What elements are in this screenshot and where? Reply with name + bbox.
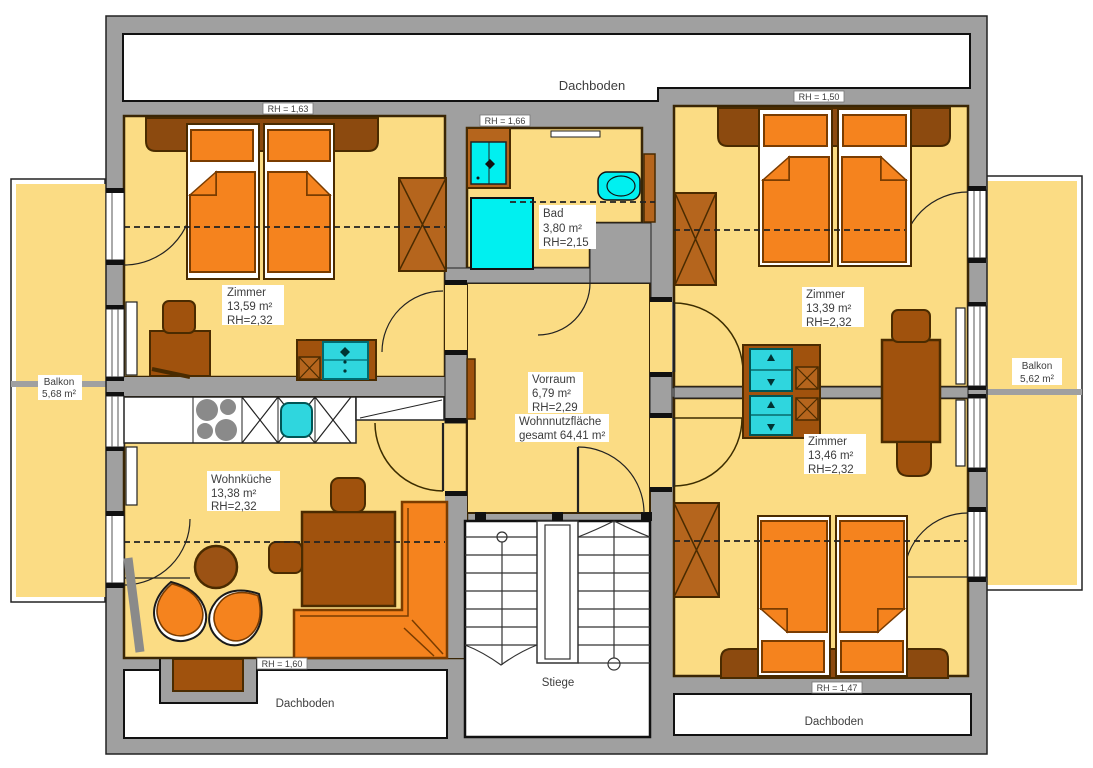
svg-text:RH=2,32: RH=2,32 (806, 317, 852, 329)
svg-text:RH=2,15: RH=2,15 (543, 237, 589, 249)
svg-text:Balkon: Balkon (44, 377, 75, 388)
svg-text:Dachboden: Dachboden (805, 716, 864, 728)
svg-text:Balkon: Balkon (1022, 361, 1053, 372)
svg-text:Zimmer: Zimmer (227, 287, 266, 299)
svg-text:RH = 1,63: RH = 1,63 (268, 104, 309, 114)
svg-text:Wohnküche: Wohnküche (211, 474, 272, 486)
svg-text:6,79 m²: 6,79 m² (532, 388, 571, 400)
svg-text:5,62 m²: 5,62 m² (1020, 374, 1055, 385)
svg-text:RH=2,32: RH=2,32 (227, 315, 273, 327)
svg-text:13,59 m²: 13,59 m² (227, 301, 273, 313)
svg-text:Zimmer: Zimmer (808, 436, 847, 448)
svg-text:RH=2,32: RH=2,32 (808, 464, 854, 476)
svg-text:RH=2,29: RH=2,29 (532, 402, 578, 414)
svg-text:3,80 m²: 3,80 m² (543, 223, 582, 235)
svg-text:Bad: Bad (543, 208, 563, 220)
svg-text:RH = 1,50: RH = 1,50 (799, 92, 840, 102)
svg-text:13,46 m²: 13,46 m² (808, 450, 854, 462)
svg-text:RH=2,32: RH=2,32 (211, 501, 257, 513)
svg-text:Wohnnutzfläche: Wohnnutzfläche (519, 416, 601, 428)
svg-text:Zimmer: Zimmer (806, 289, 845, 301)
svg-text:5,68 m²: 5,68 m² (42, 389, 77, 400)
svg-text:RH = 1,60: RH = 1,60 (262, 659, 303, 669)
svg-text:RH = 1,66: RH = 1,66 (485, 116, 526, 126)
svg-text:13,39 m²: 13,39 m² (806, 303, 852, 315)
svg-text:RH = 1,47: RH = 1,47 (817, 683, 858, 693)
svg-text:Dachboden: Dachboden (559, 78, 626, 93)
svg-text:Dachboden: Dachboden (276, 698, 335, 710)
svg-text:gesamt 64,41 m²: gesamt 64,41 m² (519, 430, 605, 442)
svg-text:Stiege: Stiege (542, 677, 575, 689)
svg-text:13,38 m²: 13,38 m² (211, 488, 257, 500)
svg-text:Vorraum: Vorraum (532, 374, 575, 386)
